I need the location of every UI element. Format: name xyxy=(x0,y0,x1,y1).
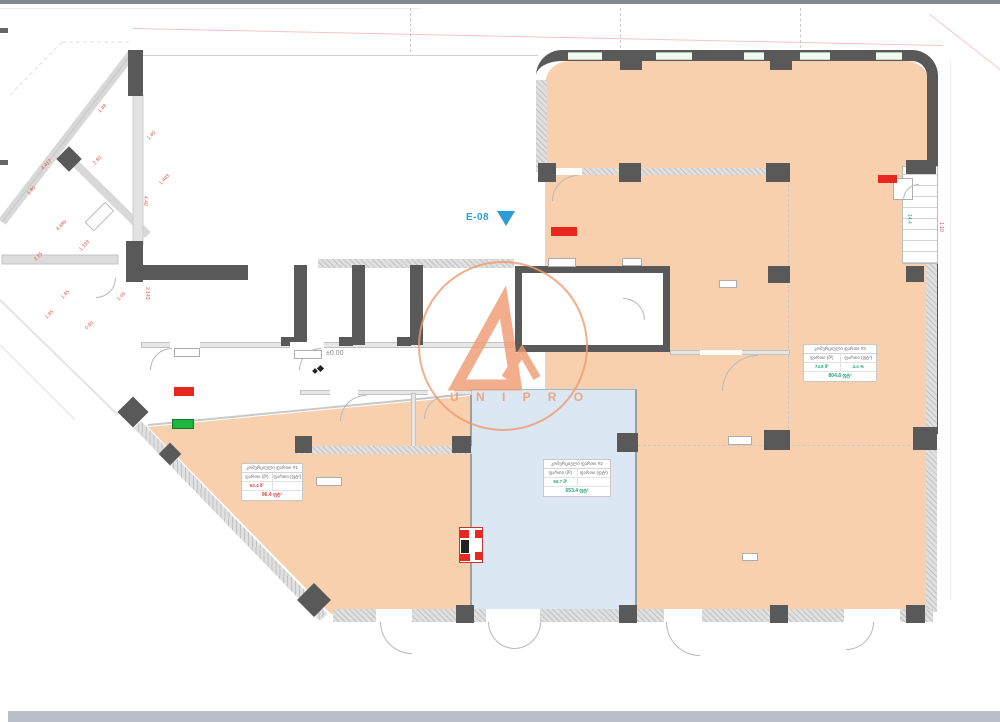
axis-line xyxy=(410,8,411,52)
column xyxy=(619,163,641,182)
column xyxy=(126,241,143,282)
column xyxy=(906,160,936,174)
wall-foot xyxy=(339,337,353,346)
table-title: კომერციული ფართი #3 xyxy=(804,345,876,354)
column xyxy=(538,163,556,182)
window xyxy=(744,52,764,60)
column xyxy=(617,433,638,452)
level-marker-icon xyxy=(317,365,324,372)
door-opening xyxy=(844,609,900,622)
partition-wall xyxy=(296,446,472,454)
window xyxy=(800,52,830,60)
window-sill xyxy=(742,553,758,561)
floor-plan-canvas: ±0.00 E-08 კომერციული ფართი #1 ფართი (მ²… xyxy=(0,0,1000,722)
margin-line xyxy=(950,60,951,600)
room-commercial-3-lower xyxy=(637,434,930,611)
level-marker-label: ±0.00 xyxy=(326,350,343,357)
column xyxy=(913,427,937,450)
fire-hydrant-icon xyxy=(459,527,483,563)
window-sill xyxy=(719,280,737,288)
shaft-wall xyxy=(926,264,937,436)
wall xyxy=(294,265,307,345)
column xyxy=(770,52,792,70)
wall-foot xyxy=(397,337,411,346)
bottom-bar xyxy=(8,711,1000,722)
column xyxy=(452,436,471,453)
door-arc xyxy=(666,622,700,656)
column xyxy=(619,605,637,623)
red-marker xyxy=(551,227,577,236)
column xyxy=(295,436,312,453)
red-marker xyxy=(174,387,194,396)
unipro-logo-text: U N I P R O xyxy=(450,390,590,404)
door-arc xyxy=(340,395,366,421)
grid-line xyxy=(0,8,420,9)
green-marker xyxy=(172,419,194,429)
door-opening xyxy=(376,609,412,622)
top-bar xyxy=(0,0,1000,4)
door-opening xyxy=(290,342,324,348)
door-opening xyxy=(330,390,358,395)
window xyxy=(568,52,602,60)
window xyxy=(876,52,902,60)
red-marker xyxy=(878,175,897,183)
window-sill xyxy=(316,477,342,486)
column xyxy=(766,163,790,182)
elevation-tag-label: E-08 xyxy=(466,212,489,223)
column xyxy=(770,605,788,623)
column xyxy=(456,605,474,623)
red-reference-line xyxy=(929,14,1000,71)
column xyxy=(620,52,642,70)
column xyxy=(906,266,924,282)
column xyxy=(906,605,925,623)
area-table-2: კომერციული ფართი #2 ფართი (მ²)ფართი (ფტ²… xyxy=(543,459,611,497)
door-opening xyxy=(700,350,742,355)
door-arc xyxy=(514,622,541,649)
exterior-wall xyxy=(926,434,937,612)
door-arc xyxy=(488,622,515,649)
window xyxy=(656,52,692,60)
column xyxy=(764,430,790,450)
door-opening xyxy=(556,168,582,175)
window-sill xyxy=(728,436,752,445)
door-arc xyxy=(380,622,412,654)
axis-line xyxy=(620,8,621,48)
area-table-3: კომერციული ფართი #3 ფართი (მ²)ფართი (ფტ²… xyxy=(803,344,877,382)
window-sill xyxy=(294,350,322,359)
window-wall xyxy=(536,80,547,172)
axis-line xyxy=(800,8,801,48)
door-arc xyxy=(846,622,874,650)
area-table-1: კომერციული ფართი #1 ფართი (მ²)ფართი (ფტ²… xyxy=(241,463,303,501)
table-title: კომერციული ფართი #1 xyxy=(242,464,302,473)
column xyxy=(128,50,143,96)
table-title: კომერციული ფართი #2 xyxy=(544,460,610,469)
dimension-label: 1.10 xyxy=(938,222,944,232)
elevation-triangle-icon xyxy=(497,211,515,226)
door-opening xyxy=(664,609,702,622)
wall xyxy=(352,265,365,345)
column xyxy=(768,266,790,283)
unipro-logo-icon xyxy=(413,258,593,434)
window-sill xyxy=(174,348,200,357)
door-opening xyxy=(486,609,540,622)
window-sill xyxy=(622,258,642,266)
wall xyxy=(129,265,248,280)
